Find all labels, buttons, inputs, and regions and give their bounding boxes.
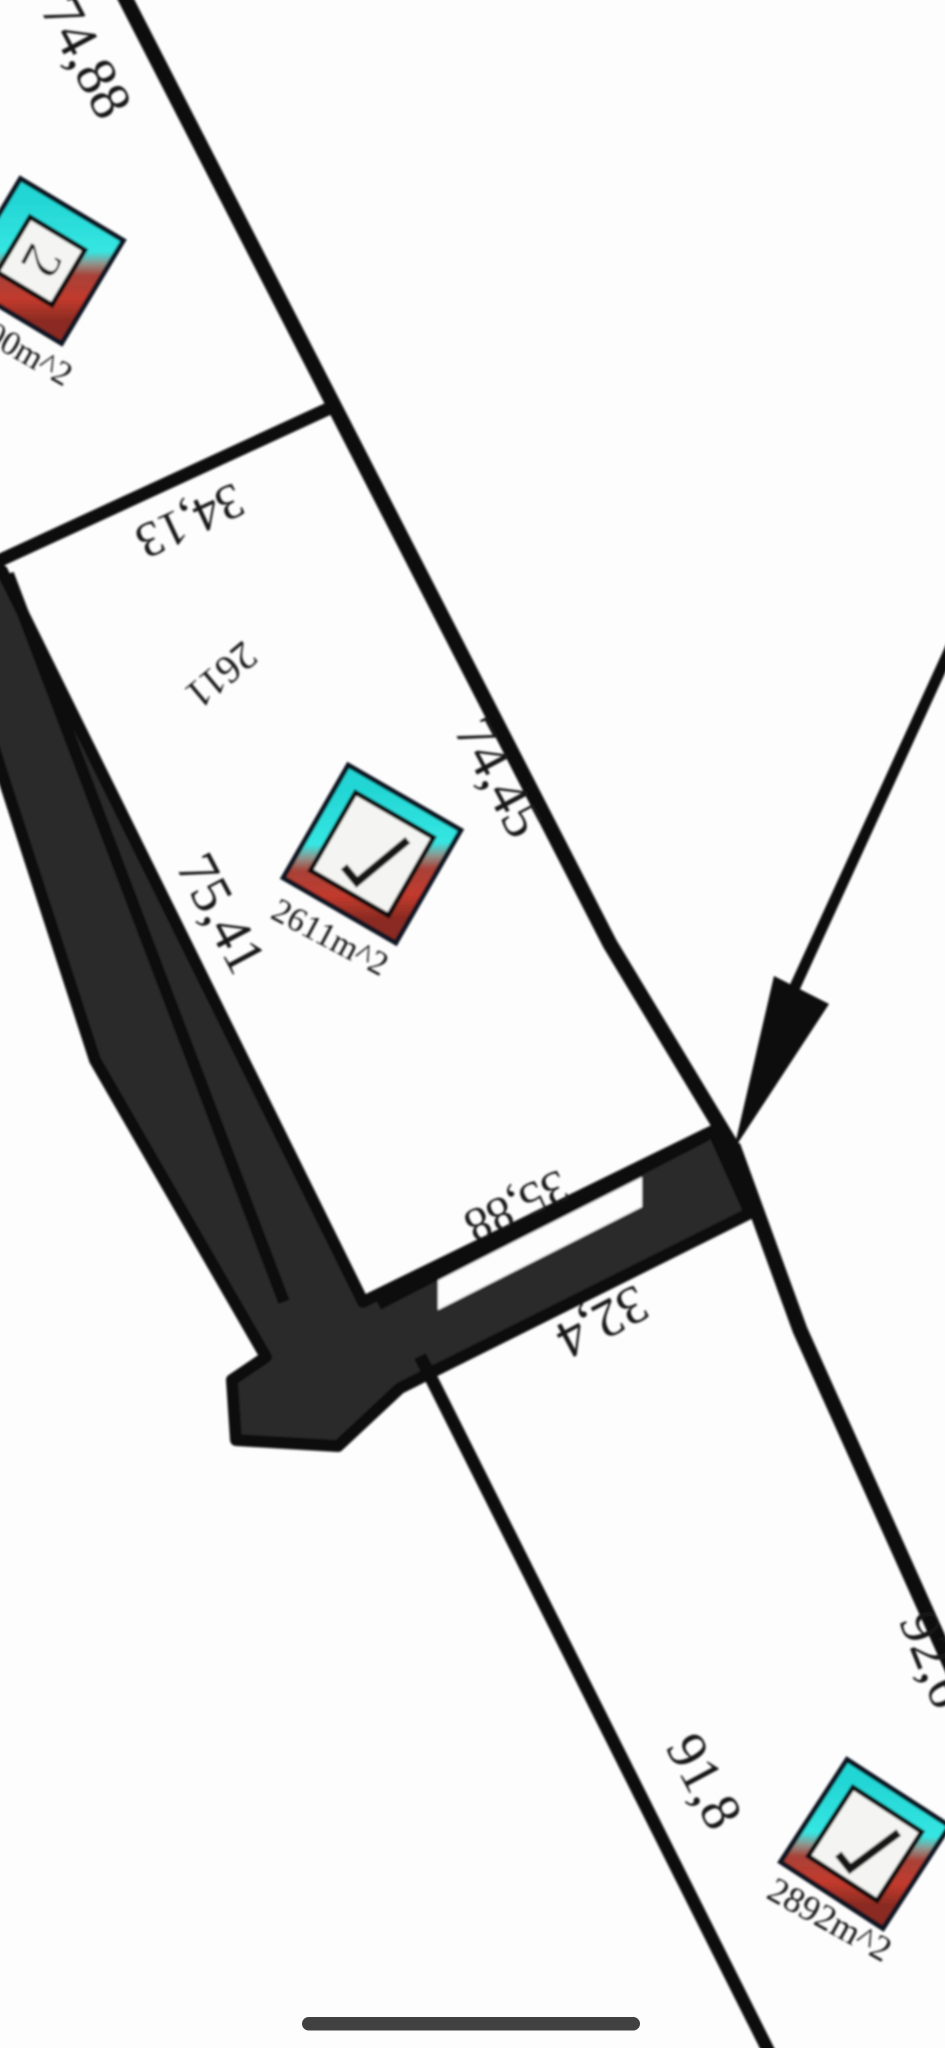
svg-text:2611: 2611 bbox=[177, 633, 266, 718]
svg-text:74,88: 74,88 bbox=[28, 0, 144, 129]
svg-text:92,6: 92,6 bbox=[887, 1602, 945, 1716]
svg-text:91,8: 91,8 bbox=[654, 1724, 755, 1840]
